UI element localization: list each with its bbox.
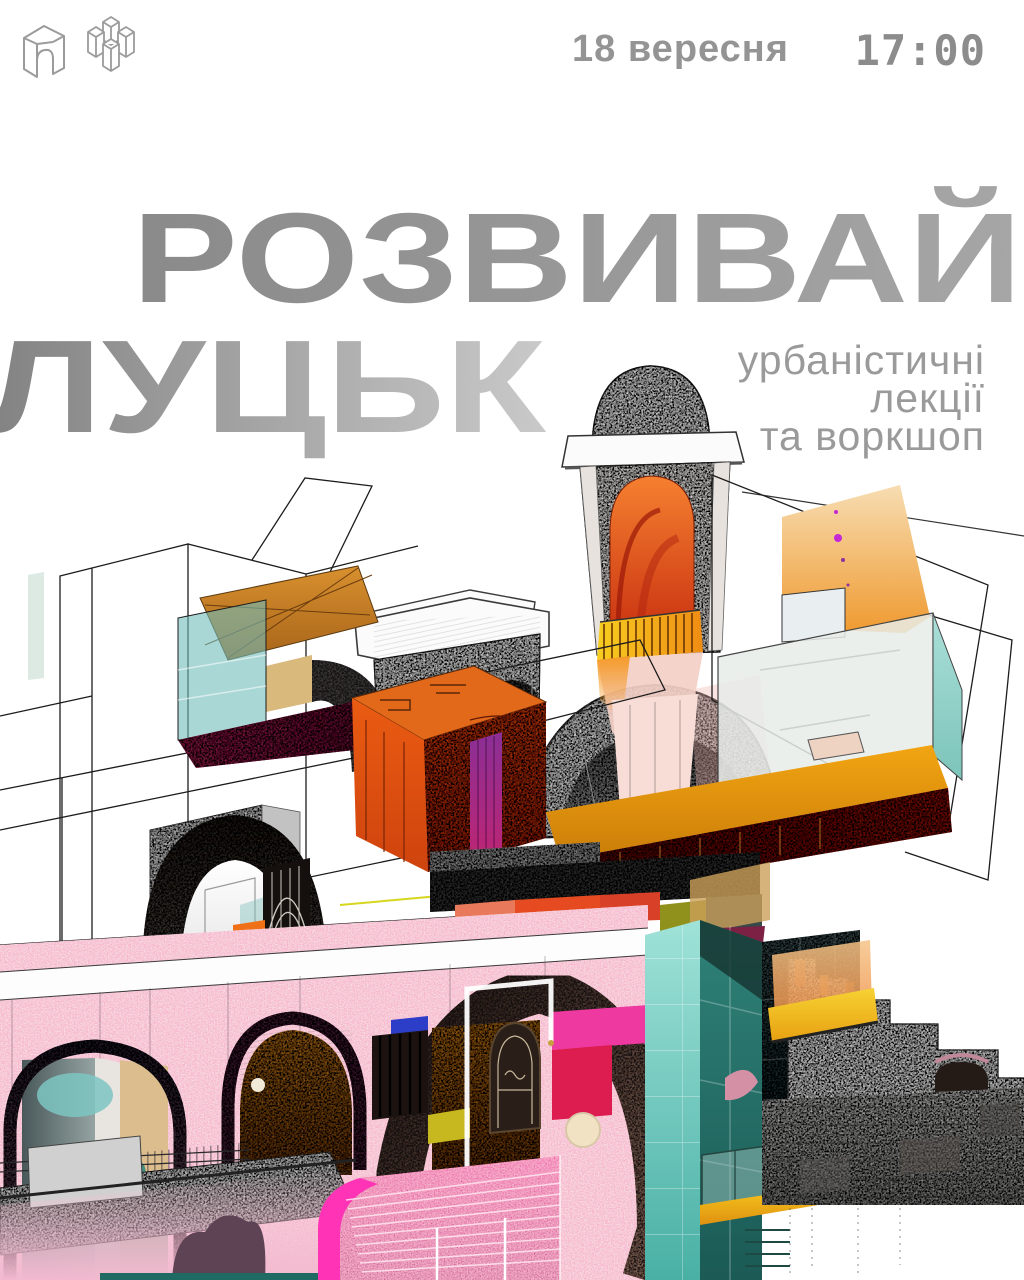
architecture-collage-illustration	[0, 360, 1024, 1280]
arch-monument-icon	[16, 16, 68, 80]
lower-facade	[0, 905, 660, 1280]
event-time: 17:00	[855, 26, 986, 75]
event-date: 18 вересня	[572, 28, 789, 71]
stone-walls	[762, 940, 1024, 1278]
logo-group	[16, 16, 138, 80]
pillars-monument-icon	[84, 16, 138, 80]
central-orange-box	[352, 666, 546, 872]
title-line-1: РОЗВИВАЙ	[132, 186, 1022, 330]
poster: 18 вересня 17:00	[0, 0, 1024, 1280]
